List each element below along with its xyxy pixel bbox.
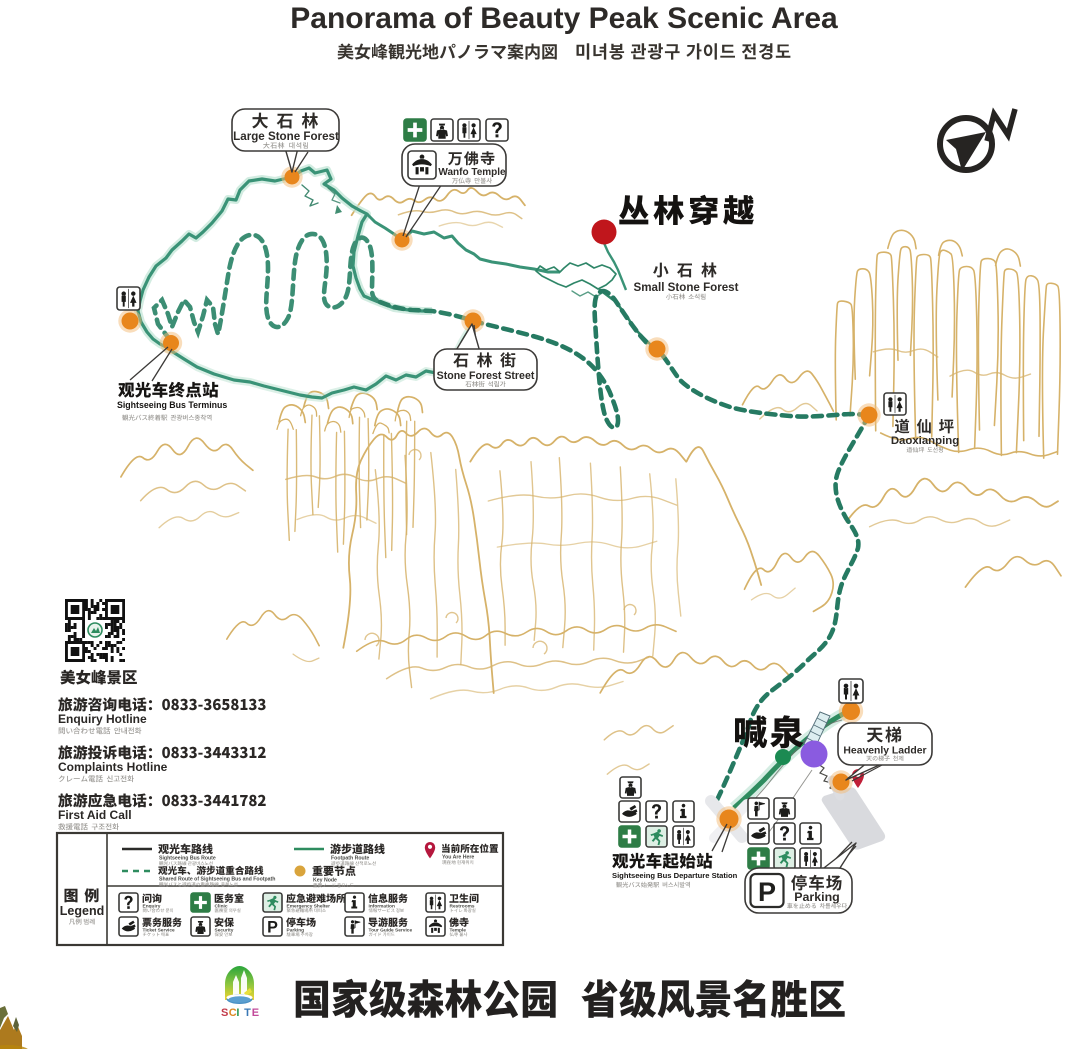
svg-text:Ticket Service: Ticket Service <box>143 928 176 934</box>
svg-text:Stone Forest Street: Stone Forest Street <box>437 370 535 382</box>
svg-text:Large Stone Forest: Large Stone Forest <box>233 130 339 143</box>
svg-text:Daoxianping: Daoxianping <box>891 435 959 447</box>
svg-text:Shared Route of Sightseeing Bu: Shared Route of Sightseeing Bus and Foot… <box>159 877 275 883</box>
svg-text:S: S <box>221 1007 228 1019</box>
svg-text:Complaints Hotline: Complaints Hotline <box>58 760 168 774</box>
svg-text:Sightseeing Bus Departure Stat: Sightseeing Bus Departure Station <box>612 871 738 880</box>
svg-text:First Aid Call: First Aid Call <box>58 808 132 822</box>
svg-text:I: I <box>236 1007 239 1019</box>
svg-text:Parking: Parking <box>794 890 839 904</box>
svg-text:Legend: Legend <box>60 904 104 918</box>
svg-text:E: E <box>252 1007 259 1019</box>
svg-text:Key Node: Key Node <box>313 878 337 884</box>
svg-text:Enquiry Hotline: Enquiry Hotline <box>58 712 147 726</box>
svg-text:You Are Here: You Are Here <box>442 855 474 861</box>
svg-text:P: P <box>758 877 776 907</box>
svg-text:Sightseeing Bus Route: Sightseeing Bus Route <box>159 856 216 862</box>
svg-text:Footpath Route: Footpath Route <box>331 856 369 862</box>
svg-text:Panorama of Beauty Peak Scenic: Panorama of Beauty Peak Scenic Area <box>290 2 838 35</box>
svg-text:Tour Guide Service: Tour Guide Service <box>369 928 413 934</box>
svg-text:T: T <box>244 1007 251 1019</box>
svg-text:Sightseeing Bus Terminus: Sightseeing Bus Terminus <box>117 400 227 410</box>
svg-text:Small Stone Forest: Small Stone Forest <box>633 281 738 294</box>
svg-text:P: P <box>267 919 278 937</box>
svg-text:Wanfo Temple: Wanfo Temple <box>438 167 506 178</box>
svg-text:Heavenly Ladder: Heavenly Ladder <box>843 746 926 757</box>
